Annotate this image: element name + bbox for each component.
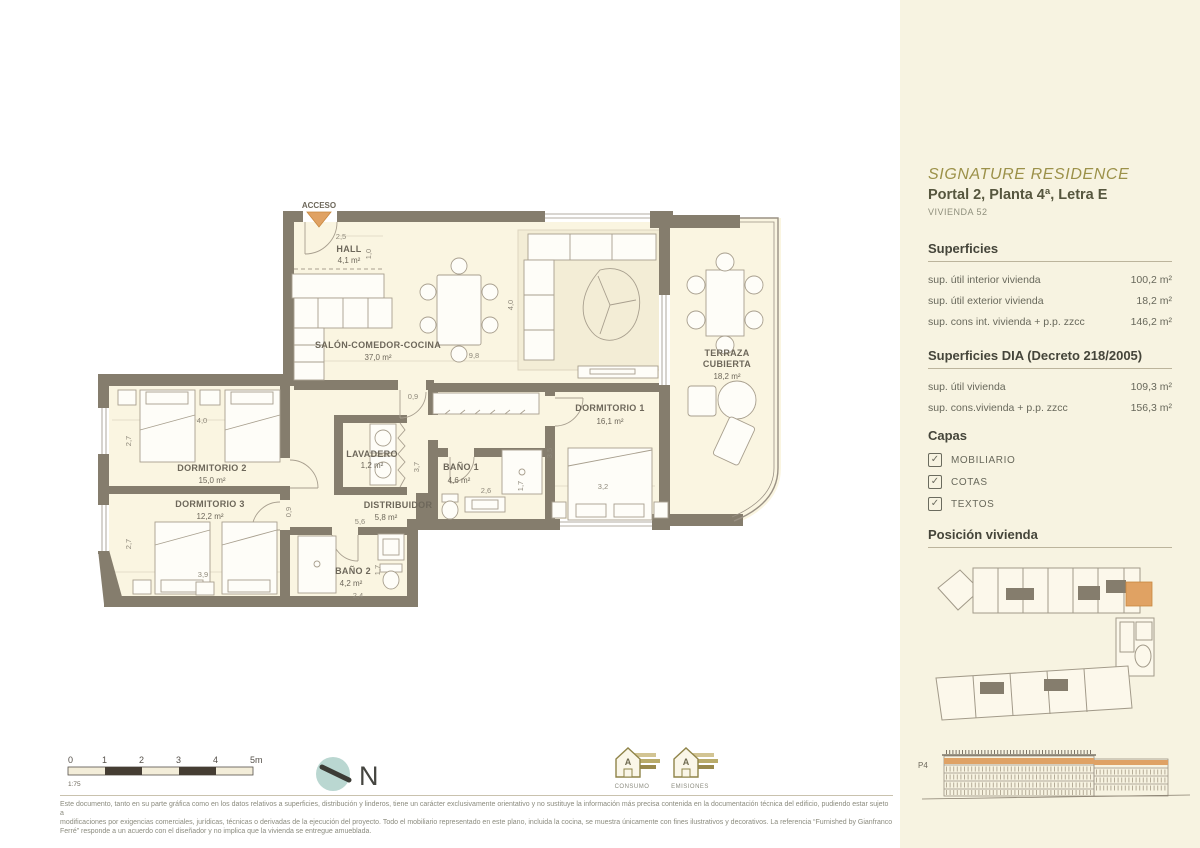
divider: [928, 547, 1172, 548]
scale-ratio: 1:75: [68, 781, 81, 788]
unit-subtitle: VIVIENDA 52: [928, 207, 1172, 217]
checkbox-checked-icon[interactable]: ✓: [928, 475, 942, 489]
north-label: N: [359, 761, 379, 791]
divider: [928, 368, 1172, 369]
site-bottom-wing: [936, 666, 1132, 720]
disclaimer-text: Este documento, tanto en su parte gráfic…: [60, 795, 893, 836]
svg-text:16,1 m²: 16,1 m²: [596, 417, 623, 426]
svg-text:2,6: 2,6: [481, 486, 491, 495]
layers-list: ✓ MOBILIARIO ✓ COTAS ✓ TEXTOS: [928, 453, 1172, 511]
room-distribuidor: DISTRIBUIDOR: [364, 500, 433, 510]
consumo-icon: A CONSUMO: [615, 748, 660, 790]
svg-text:4,0: 4,0: [197, 416, 207, 425]
terrace-table: [706, 270, 744, 336]
svg-text:3,7: 3,7: [412, 462, 421, 472]
svg-text:4,1 m²: 4,1 m²: [338, 256, 361, 265]
table-row: sup. útil interior vivienda 100,2 m²: [928, 274, 1172, 286]
svg-text:0,9: 0,9: [284, 507, 293, 517]
layer-toggle-cotas[interactable]: ✓ COTAS: [928, 475, 1172, 489]
room-dorm1: DORMITORIO 1: [575, 403, 644, 413]
shower-bano2: [298, 536, 336, 593]
site-key-plan: [928, 558, 1172, 730]
floor-plan: ACCESO HALL 4,1 m² SALÓN-COMEDOR-COCINA …: [58, 180, 808, 630]
terrace-armchair: [688, 386, 716, 416]
unit-title: Portal 2, Planta 4ª, Letra E: [928, 187, 1172, 203]
layer-toggle-textos[interactable]: ✓ TEXTOS: [928, 497, 1172, 511]
svg-text:A: A: [625, 757, 632, 767]
svg-text:1,0: 1,0: [364, 249, 373, 259]
svg-text:18,2 m²: 18,2 m²: [713, 372, 740, 381]
svg-text:2: 2: [139, 755, 144, 765]
info-sidebar: SIGNATURE RESIDENCE Portal 2, Planta 4ª,…: [900, 0, 1200, 848]
svg-text:1,2 m²: 1,2 m²: [361, 461, 384, 470]
capas-heading: Capas: [928, 428, 1172, 443]
svg-text:37,0 m²: 37,0 m²: [364, 353, 391, 362]
svg-text:2,5: 2,5: [336, 232, 346, 241]
kitchen-counter-side: [294, 328, 324, 380]
svg-text:CUBIERTA: CUBIERTA: [703, 359, 751, 369]
floor-level-label: P4: [918, 761, 928, 770]
svg-text:9,8: 9,8: [469, 351, 479, 360]
svg-text:5,8 m²: 5,8 m²: [375, 513, 398, 522]
svg-text:1,7: 1,7: [516, 481, 525, 491]
svg-text:15,0 m²: 15,0 m²: [198, 476, 225, 485]
project-title: SIGNATURE RESIDENCE: [928, 166, 1172, 184]
room-lavadero: LAVADERO: [346, 449, 398, 459]
superficies-table: sup. útil interior vivienda 100,2 m² sup…: [928, 274, 1172, 328]
room-bano1: BAÑO 1: [443, 462, 479, 472]
room-salon: SALÓN-COMEDOR-COCINA: [315, 339, 441, 350]
emisiones-label: EMISIONES: [671, 784, 709, 790]
layer-toggle-mobiliario[interactable]: ✓ MOBILIARIO: [928, 453, 1172, 467]
table-row: sup. cons.vivienda + p.p. zzcc 156,3 m²: [928, 402, 1172, 414]
north-compass: N: [313, 753, 393, 797]
svg-text:1: 1: [102, 755, 107, 765]
room-hall: HALL: [336, 244, 361, 254]
superficies-dia-table: sup. útil vivienda 109,3 m² sup. cons.vi…: [928, 381, 1172, 414]
svg-text:2,7: 2,7: [124, 436, 133, 446]
site-highlighted-unit: [1126, 582, 1152, 606]
ground-line: [922, 795, 1190, 799]
room-terraza: TERRAZA: [704, 348, 749, 358]
highlighted-floor-band: [944, 758, 1094, 764]
svg-text:4: 4: [213, 755, 218, 765]
superficies-heading: Superficies: [928, 241, 1172, 256]
svg-text:0,9: 0,9: [408, 392, 418, 401]
superficies-dia-heading: Superficies DIA (Decreto 218/2005): [928, 348, 1172, 363]
terrace-round-table: [718, 381, 756, 419]
consumo-label: CONSUMO: [615, 784, 650, 790]
svg-text:A: A: [683, 757, 690, 767]
posicion-heading: Posición vivienda: [928, 527, 1172, 542]
svg-text:2,7: 2,7: [124, 539, 133, 549]
room-bano2: BAÑO 2: [335, 566, 371, 576]
svg-text:5,6: 5,6: [355, 517, 365, 526]
energy-rating-icons: A CONSUMO A EMISIONES: [612, 743, 742, 803]
svg-text:0: 0: [68, 755, 73, 765]
svg-text:3: 3: [176, 755, 181, 765]
checkbox-checked-icon[interactable]: ✓: [928, 453, 942, 467]
svg-text:5m: 5m: [250, 755, 263, 765]
vanity-bano2: [378, 534, 404, 560]
svg-text:3,2: 3,2: [598, 482, 608, 491]
svg-text:3,9: 3,9: [198, 570, 208, 579]
room-dorm2: DORMITORIO 2: [177, 463, 246, 473]
sofa-back: [528, 234, 656, 260]
table-row: sup. útil exterior vivienda 18,2 m²: [928, 295, 1172, 307]
divider: [928, 261, 1172, 262]
room-dorm3: DORMITORIO 3: [175, 499, 244, 509]
svg-text:2,4: 2,4: [353, 591, 363, 600]
scale-bar: 0 1 2 3 4 5m 1:75: [66, 753, 266, 795]
dining-table: [437, 275, 481, 345]
svg-text:4,0: 4,0: [506, 300, 515, 310]
table-row: sup. cons int. vivienda + p.p. zzcc 146,…: [928, 316, 1172, 328]
svg-text:1,7: 1,7: [373, 565, 382, 575]
emisiones-icon: A EMISIONES: [671, 748, 718, 790]
svg-text:12,2 m²: 12,2 m²: [196, 512, 223, 521]
acceso-label: ACCESO: [302, 201, 336, 210]
svg-text:3,5: 3,5: [545, 448, 554, 458]
building-elevation: P4: [916, 742, 1198, 806]
svg-text:4,2 m²: 4,2 m²: [340, 579, 363, 588]
checkbox-checked-icon[interactable]: ✓: [928, 497, 942, 511]
svg-text:4,6 m²: 4,6 m²: [448, 476, 471, 485]
vanity-bano1: [465, 497, 505, 512]
table-row: sup. útil vivienda 109,3 m²: [928, 381, 1172, 393]
hall-wardrobe: [292, 274, 384, 298]
sofa-chaise: [524, 260, 554, 360]
